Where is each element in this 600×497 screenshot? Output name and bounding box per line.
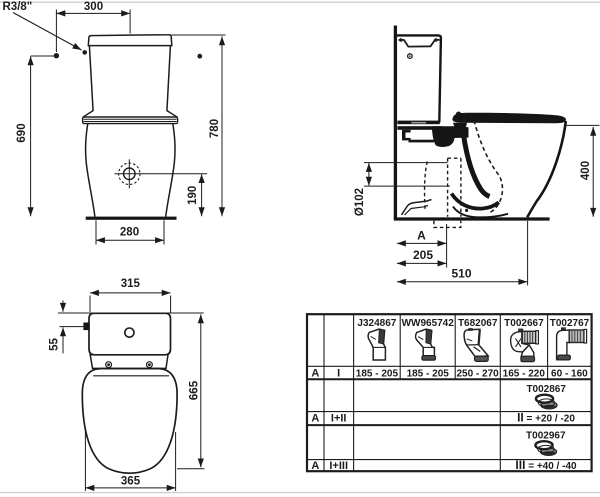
svg-text:Ø102: Ø102 (354, 188, 366, 216)
svg-text:400: 400 (580, 161, 592, 180)
svg-text:510: 510 (451, 266, 471, 280)
svg-text:665: 665 (188, 380, 200, 400)
svg-text:55: 55 (49, 338, 61, 351)
svg-text:I+III: I+III (329, 460, 348, 472)
svg-text:T002667: T002667 (504, 318, 544, 329)
svg-text:315: 315 (121, 278, 141, 290)
svg-text:205: 205 (413, 248, 433, 262)
svg-text:A: A (311, 460, 319, 472)
svg-text:III = +40 / -40: III = +40 / -40 (515, 458, 577, 472)
svg-text:T002867: T002867 (526, 384, 566, 395)
svg-text:280: 280 (120, 226, 139, 238)
svg-text:A: A (417, 229, 426, 243)
svg-text:250 - 270: 250 - 270 (456, 369, 499, 380)
svg-text:365: 365 (121, 475, 141, 487)
svg-text:WW965742: WW965742 (402, 318, 455, 329)
svg-text:J324867: J324867 (357, 318, 396, 329)
svg-text:190: 190 (187, 186, 199, 205)
svg-text:T682067: T682067 (458, 318, 498, 329)
svg-text:A: A (311, 368, 319, 380)
svg-text:780: 780 (209, 119, 221, 138)
svg-text:690: 690 (16, 123, 28, 142)
svg-text:185 - 205: 185 - 205 (407, 369, 450, 380)
svg-text:165 - 220: 165 - 220 (503, 369, 546, 380)
svg-text:I: I (337, 368, 340, 380)
svg-text:185 - 205: 185 - 205 (356, 369, 399, 380)
svg-text:T002767: T002767 (550, 318, 590, 329)
svg-text:60 - 160: 60 - 160 (551, 369, 588, 380)
svg-text:A: A (311, 413, 319, 425)
svg-text:I+II: I+II (331, 413, 347, 425)
svg-text:II = +20 / -20: II = +20 / -20 (517, 411, 575, 425)
svg-text:300: 300 (84, 1, 103, 13)
svg-text:R3/8": R3/8" (3, 1, 33, 13)
svg-text:T002967: T002967 (526, 431, 566, 442)
